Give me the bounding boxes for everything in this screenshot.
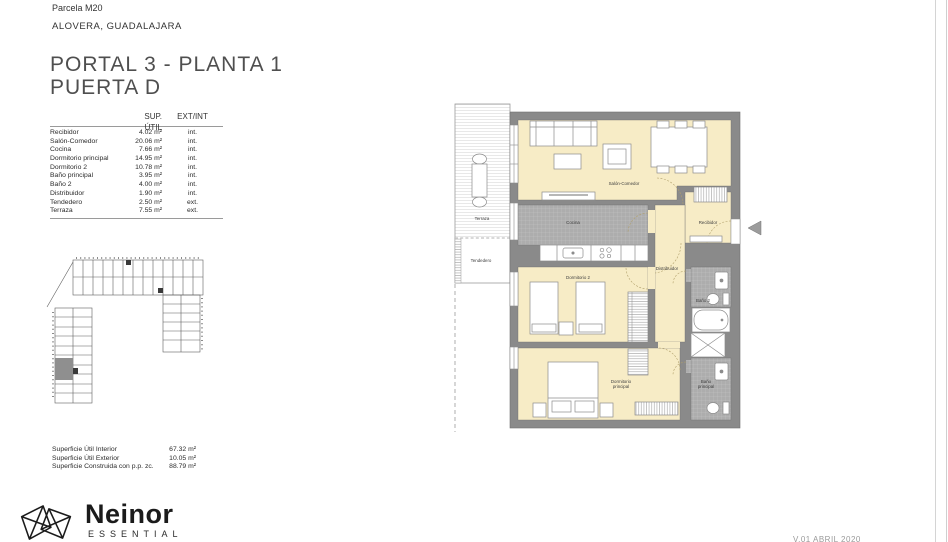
table-row: Tendedero2.50 m²ext. <box>50 199 223 208</box>
table-rule-bottom <box>50 218 223 219</box>
table-row: Distribuidor1.90 m²int. <box>50 190 223 199</box>
table-row: Dormitorio principal14.95 m²int. <box>50 155 223 164</box>
neinor-logo-icon <box>14 503 80 542</box>
label-dormppal-2: principal <box>613 384 629 389</box>
shower-icon <box>691 333 725 357</box>
label-terraza: Terraza <box>475 216 490 221</box>
label-banoppal-2: principal <box>698 384 714 389</box>
page-edge-line <box>935 0 936 542</box>
terrace-table-icon <box>472 154 487 207</box>
brand-name: Neinor <box>85 499 174 530</box>
page-title: PORTAL 3 - PLANTA 1 PUERTA D <box>50 53 283 99</box>
page-title-line2: PUERTA D <box>50 76 283 99</box>
table-row: Baño principal3.95 m²int. <box>50 172 223 181</box>
summary-row: Superficie Útil Interior67.32 m² <box>52 446 196 455</box>
revision-note: V.01 ABRIL 2020 <box>793 535 861 542</box>
summary-row: Superficie Útil Exterior10.05 m² <box>52 455 196 464</box>
label-recibidor: Recibidor <box>699 220 718 225</box>
parcela-label: Parcela M20 <box>52 3 103 13</box>
label-tendedero: Tendedero <box>471 258 492 263</box>
label-distribuidor: Distribuidor <box>656 266 679 271</box>
areas-table: SUP. ÚTIL EXT/INT Recibidor4.02 m²int. S… <box>50 111 223 222</box>
label-dorm2: Dormitorio 2 <box>566 275 590 280</box>
entry-arrow-icon <box>748 221 761 235</box>
table-row: Dormitorio 210.78 m²int. <box>50 164 223 173</box>
brand-subtitle: ESSENTIAL <box>88 529 183 539</box>
table-row: Cocina7.66 m²int. <box>50 146 223 155</box>
table-row: Baño 24.00 m²int. <box>50 181 223 190</box>
areas-table-header: SUP. ÚTIL EXT/INT <box>50 111 223 124</box>
label-bano2: Baño 2 <box>696 298 710 303</box>
kitchen-counter-icon <box>540 245 648 261</box>
terrace-zone <box>455 104 510 432</box>
site-key-plan <box>40 250 220 420</box>
page-title-line1: PORTAL 3 - PLANTA 1 <box>50 53 283 76</box>
page-edge-line <box>946 0 947 542</box>
floor-plan: Terraza Tendedero Salón-Comedor Cocina R… <box>445 100 765 435</box>
table-row: Recibidor4.02 m²int. <box>50 129 223 138</box>
surface-summary: Superficie Útil Interior67.32 m² Superfi… <box>52 446 196 472</box>
summary-row: Superficie Construida con p.p. zc.88.79 … <box>52 463 196 472</box>
label-salon: Salón-Comedor <box>609 181 640 186</box>
location-label: ALOVERA, GUADALAJARA <box>52 21 182 32</box>
label-cocina: Cocina <box>566 220 580 225</box>
bathtub-icon <box>692 308 730 332</box>
wardrobe-icon <box>628 292 648 375</box>
plan-sheet: Parcela M20 ALOVERA, GUADALAJARA PORTAL … <box>0 0 948 542</box>
table-row: Terraza7.55 m²ext. <box>50 207 223 216</box>
highlighted-unit <box>55 358 73 380</box>
table-row: Salón-Comedor20.06 m²int. <box>50 138 223 147</box>
